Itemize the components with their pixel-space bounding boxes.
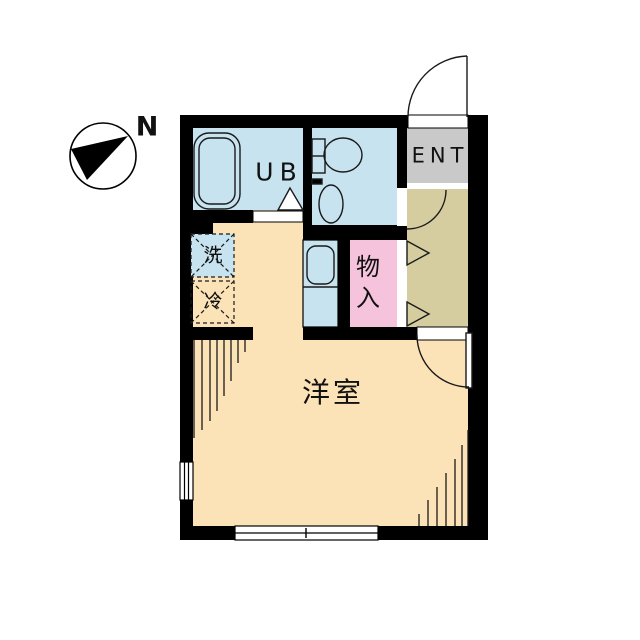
wall-bottom-right xyxy=(378,526,488,540)
wall-hallway-upper xyxy=(397,128,407,188)
floor-plan-drawing xyxy=(0,0,640,640)
floor-plan-page: N UB ENT 物 入 洗 冷 洋室 xyxy=(0,0,640,640)
wall-below-toilet xyxy=(303,225,407,240)
entrance-door-opening xyxy=(408,115,468,128)
wall-band-bottom xyxy=(303,327,417,340)
main-room-door-opening xyxy=(417,327,468,340)
toilet-partition-stub xyxy=(312,179,322,184)
main-room-label: 洋室 xyxy=(302,379,364,407)
wall-alcove-bottom xyxy=(180,327,253,340)
entrance-door-arc xyxy=(408,56,467,117)
wall-corner-block xyxy=(188,210,213,235)
fridge-label: 冷 xyxy=(203,293,222,312)
main-room-door-leaf xyxy=(466,333,472,388)
unit-bath-label: UB xyxy=(255,160,302,185)
storage-door-opening xyxy=(397,240,407,327)
toilet-door-opening xyxy=(397,188,407,226)
wall-top-left xyxy=(180,115,408,128)
north-label: N xyxy=(136,114,159,141)
wall-bath-toilet-divider xyxy=(303,128,312,225)
storage-label: 物 入 xyxy=(356,252,380,314)
entrance-label: ENT xyxy=(412,146,469,167)
unit-bath-door-opening xyxy=(253,211,303,222)
compass-icon xyxy=(70,123,136,189)
wall-kitchen-storage-divider xyxy=(338,240,350,327)
wall-right xyxy=(468,115,488,540)
washer-label: 洗 xyxy=(203,247,222,266)
entrance-step-edge xyxy=(407,183,468,189)
wall-bottom-left xyxy=(180,526,235,540)
storage-label-char-1: 物 xyxy=(356,252,380,283)
west-window xyxy=(180,462,193,500)
storage-label-char-2: 入 xyxy=(356,283,380,314)
